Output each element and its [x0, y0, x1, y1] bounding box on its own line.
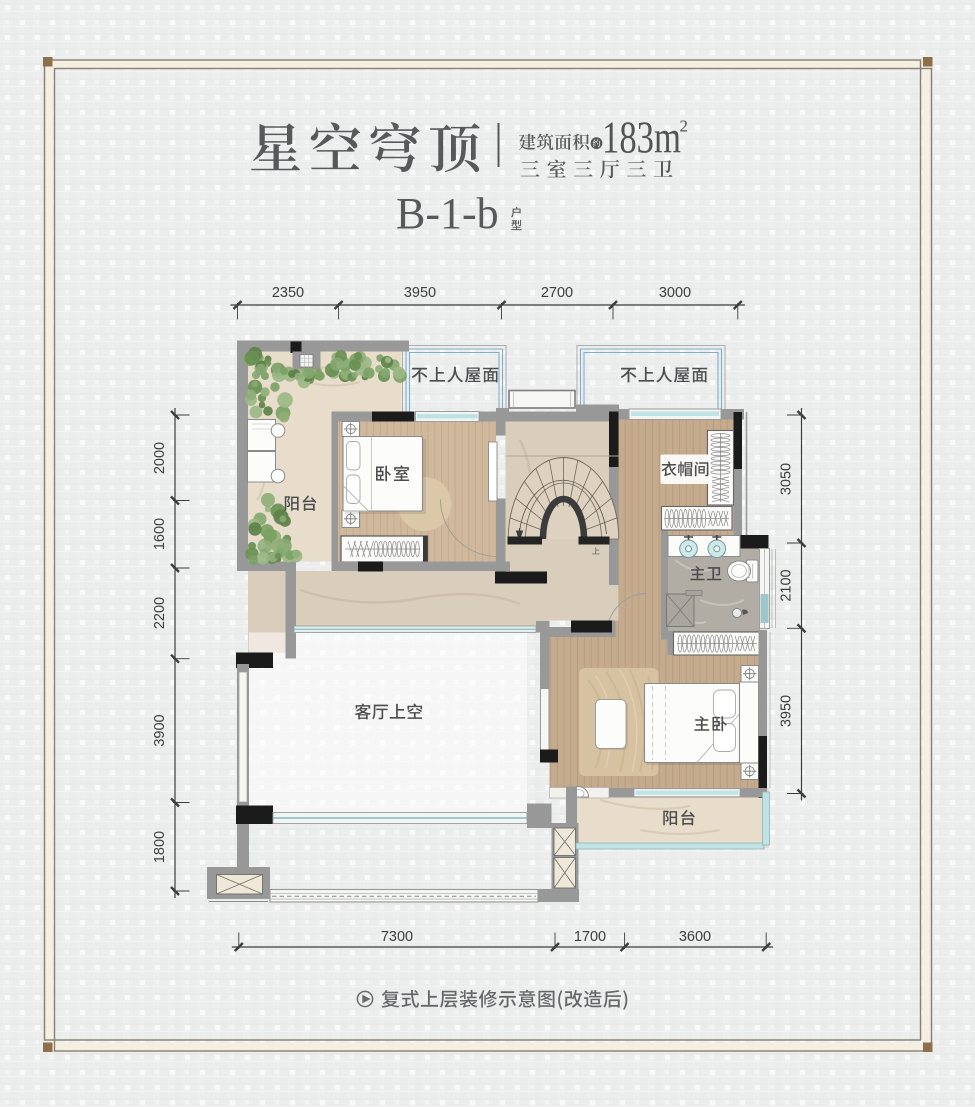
svg-text:2100: 2100 — [779, 569, 795, 601]
svg-text:183m: 183m — [602, 113, 681, 163]
svg-text:3950: 3950 — [404, 285, 436, 301]
svg-text:3900: 3900 — [152, 714, 168, 746]
svg-text:1800: 1800 — [152, 831, 168, 863]
svg-text:1600: 1600 — [152, 518, 168, 550]
svg-text:7300: 7300 — [381, 929, 413, 945]
svg-text:1700: 1700 — [574, 929, 606, 945]
svg-text:B-1-b: B-1-b — [396, 189, 499, 238]
svg-text:2200: 2200 — [152, 597, 168, 629]
svg-text:2700: 2700 — [541, 285, 573, 301]
svg-text:3600: 3600 — [679, 929, 711, 945]
svg-text:2350: 2350 — [272, 285, 304, 301]
svg-text:3000: 3000 — [659, 285, 691, 301]
svg-text:3050: 3050 — [779, 463, 795, 495]
svg-text:3950: 3950 — [779, 695, 795, 727]
svg-text:2: 2 — [680, 117, 689, 136]
svg-text:2000: 2000 — [152, 442, 168, 474]
